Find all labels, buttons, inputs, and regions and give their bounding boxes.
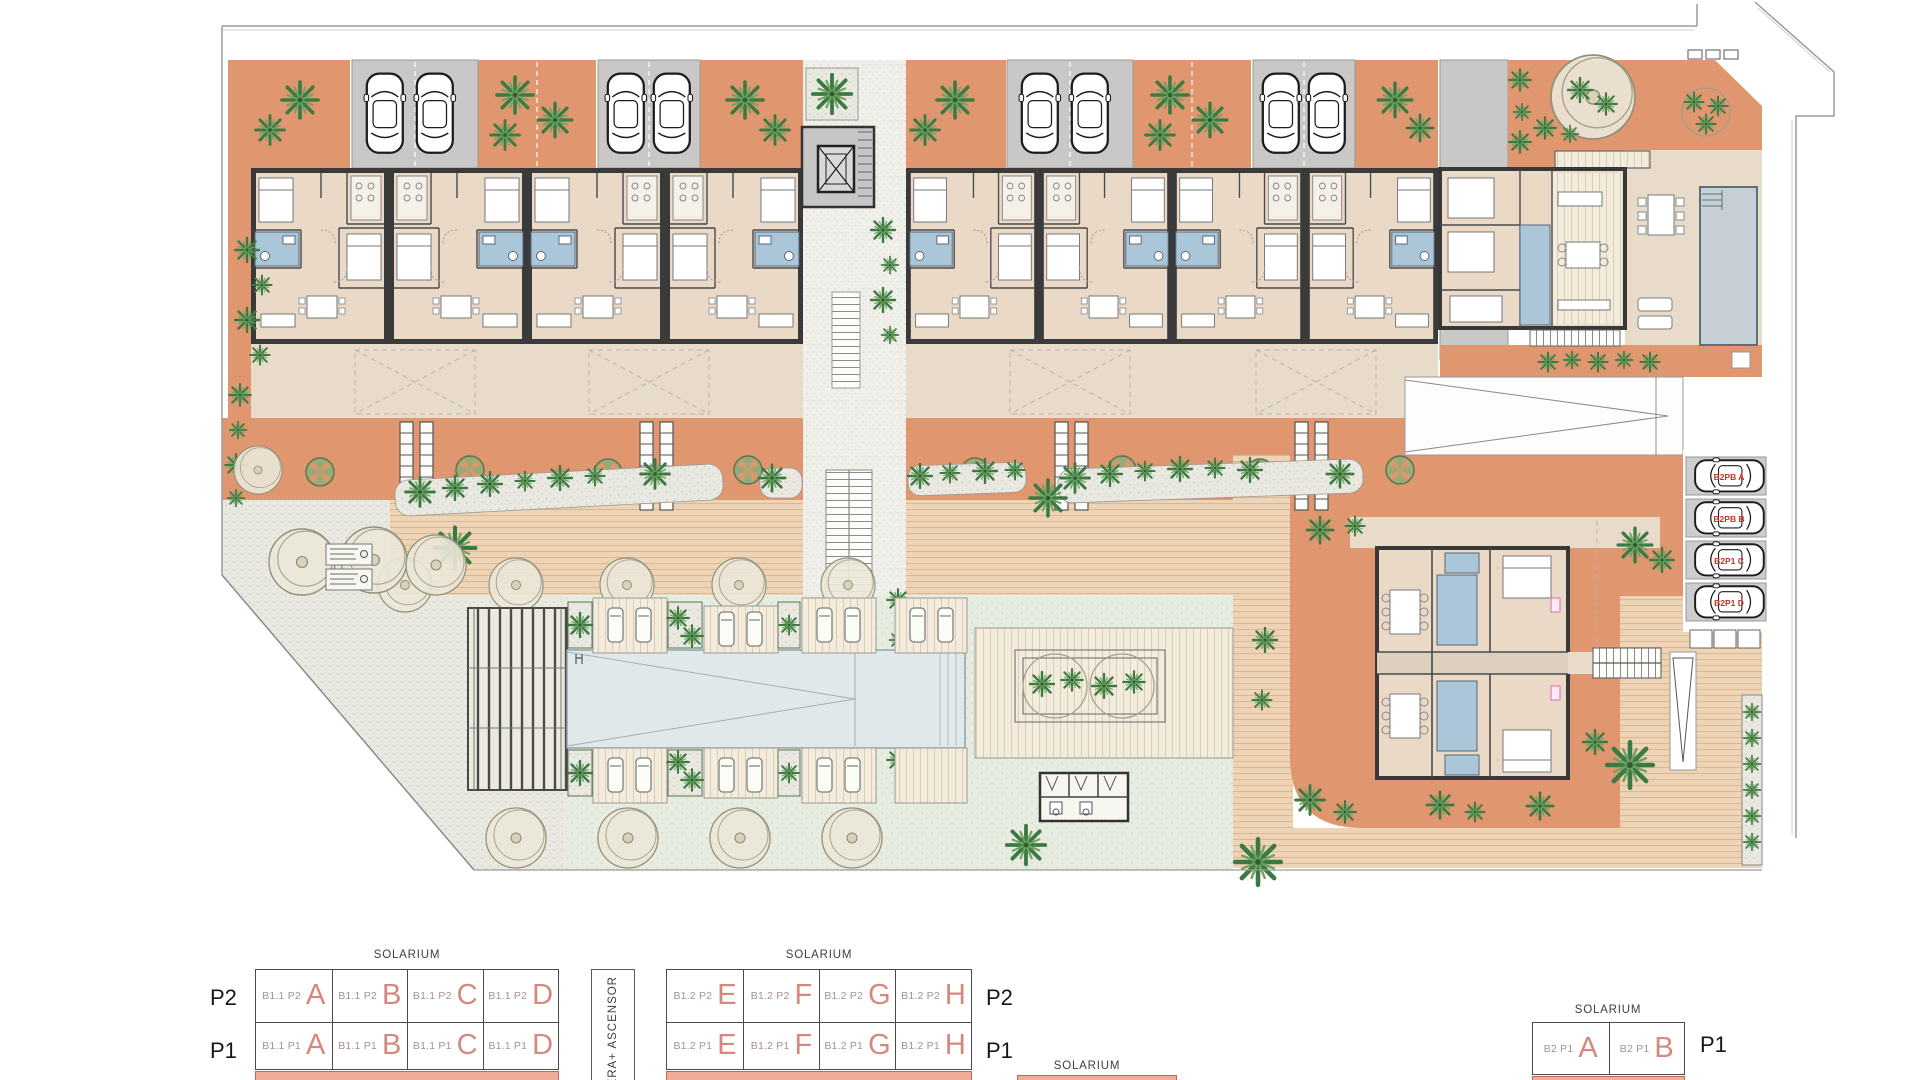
solarium-label-b12: SOLARIUM bbox=[786, 949, 852, 961]
parking-label: B2PB B bbox=[1713, 514, 1744, 524]
stairs-elevator-label: ESCALERA+ ASCENSOR bbox=[607, 976, 619, 1080]
legend-cell: B1.1 P1D bbox=[483, 1022, 559, 1069]
floor-label-p1-b2: P1 bbox=[1700, 1032, 1727, 1058]
legend-table-b11: B1.1 P2A B1.1 P2B B1.1 P2C B1.1 P2D B1.1… bbox=[255, 969, 559, 1070]
stairs-elevator-legend-box: ESCALERA+ ASCENSOR bbox=[591, 969, 635, 1080]
legend-cell: B1.2 P2E bbox=[667, 970, 743, 1022]
solarium-stub-b11 bbox=[255, 1071, 559, 1080]
legend-cell: B1.2 P2H bbox=[895, 970, 971, 1022]
parking-label: B2P1 C bbox=[1714, 556, 1744, 566]
legend-cell: B2 P1B bbox=[1609, 1023, 1685, 1074]
b2-parking-column: B2PB A B2PB B B2P1 C B2P1 D bbox=[1683, 450, 1773, 648]
parking-label: B2P1 D bbox=[1714, 598, 1744, 608]
legend-cell: B2 P1A bbox=[1533, 1023, 1609, 1074]
legend-cell: B1.1 P2C bbox=[407, 970, 483, 1022]
legend-cell: B1.2 P2F bbox=[743, 970, 819, 1022]
solarium-label-b2: SOLARIUM bbox=[1575, 1004, 1641, 1016]
solarium-stub-b2 bbox=[1532, 1076, 1685, 1080]
site-plan-drawing: B2PB A B2PB B B2P1 C B2P1 D bbox=[0, 0, 1920, 1080]
legend-cell: B1.1 P2D bbox=[483, 970, 559, 1022]
pool-wc-block bbox=[1040, 773, 1128, 821]
unit-tag-pink bbox=[1551, 686, 1560, 700]
legend-cell: B1.1 P2B bbox=[332, 970, 408, 1022]
legend-cell: B1.2 P1E bbox=[667, 1022, 743, 1069]
legend-cell: B1.2 P1H bbox=[895, 1022, 971, 1069]
legend-cell: B1.2 P2G bbox=[819, 970, 895, 1022]
solarium-stub-extra bbox=[1017, 1075, 1177, 1080]
legend-cell: B1.1 P1C bbox=[407, 1022, 483, 1069]
legend-cell: B1.1 P1B bbox=[332, 1022, 408, 1069]
villa-pool bbox=[1700, 187, 1757, 345]
parking-label: B2PB A bbox=[1714, 472, 1745, 482]
pergola bbox=[468, 608, 567, 790]
legend-cell: B1.2 P1G bbox=[819, 1022, 895, 1069]
villa-b2 bbox=[1440, 50, 1762, 377]
building-b12-units bbox=[908, 171, 1435, 342]
floor-label-p1-right: P1 bbox=[986, 1038, 1013, 1064]
unit-tag-pink bbox=[1551, 598, 1560, 612]
legend-cell: B1.1 P2A bbox=[256, 970, 332, 1022]
legend-table-b12: B1.2 P2E B1.2 P2F B1.2 P2G B1.2 P2H B1.2… bbox=[666, 969, 972, 1070]
access-ramp bbox=[1405, 377, 1683, 455]
solarium-stub-b12 bbox=[666, 1071, 972, 1080]
floor-label-p1-left: P1 bbox=[210, 1038, 237, 1064]
site-plan-page: B2PB A B2PB B B2P1 C B2P1 D bbox=[0, 0, 1920, 1080]
legend-table-b2: B2 P1A B2 P1B bbox=[1532, 1022, 1685, 1075]
legend-cell: B1.1 P1A bbox=[256, 1022, 332, 1069]
floor-label-p2-right: P2 bbox=[986, 985, 1013, 1011]
building-b11-units bbox=[254, 171, 801, 342]
legend-cell: B1.2 P1F bbox=[743, 1022, 819, 1069]
solarium-label-extra: SOLARIUM bbox=[1054, 1060, 1120, 1072]
floor-label-p2-left: P2 bbox=[210, 985, 237, 1011]
down-ramp-wedge bbox=[1670, 652, 1696, 770]
solarium-label-b11: SOLARIUM bbox=[374, 949, 440, 961]
main-pool bbox=[567, 650, 965, 748]
